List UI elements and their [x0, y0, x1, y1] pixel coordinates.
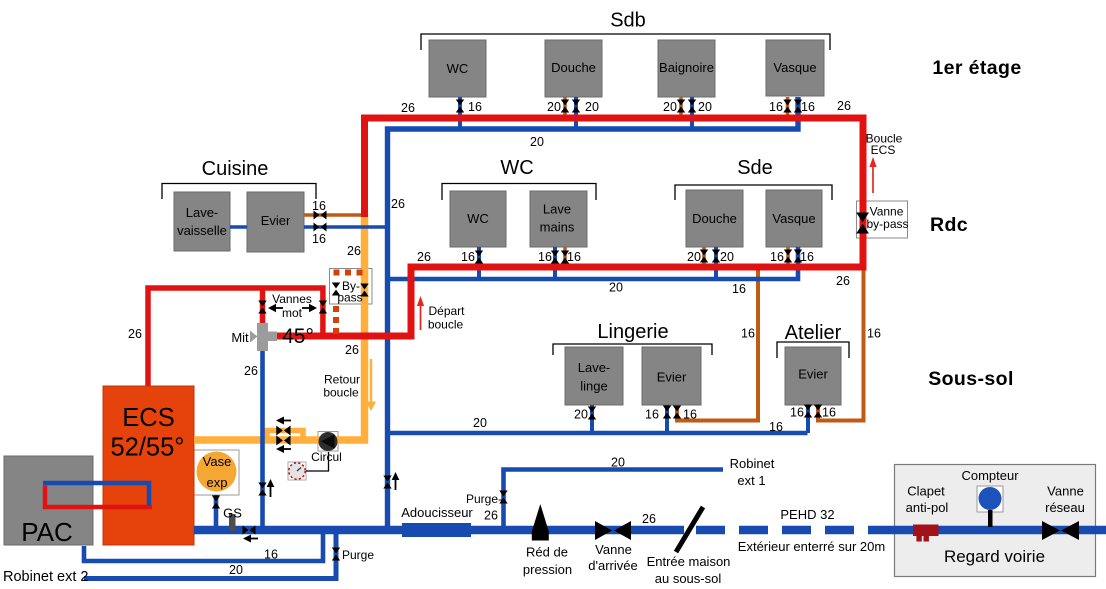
svg-text:20: 20	[609, 281, 623, 295]
svg-text:pression: pression	[523, 562, 572, 577]
svg-text:Lave-: Lave-	[578, 360, 611, 375]
svg-text:26: 26	[128, 327, 142, 341]
svg-text:Rdc: Rdc	[930, 214, 968, 236]
svg-text:Atelier: Atelier	[785, 322, 842, 344]
svg-text:16: 16	[800, 250, 814, 264]
svg-text:16: 16	[468, 100, 482, 114]
svg-text:26: 26	[836, 274, 850, 288]
svg-text:Lave: Lave	[543, 202, 571, 217]
svg-text:Regard voirie: Regard voirie	[944, 547, 1045, 566]
svg-text:16: 16	[822, 406, 836, 420]
svg-text:16: 16	[801, 100, 815, 114]
svg-text:WC: WC	[447, 61, 469, 76]
svg-text:26: 26	[417, 250, 431, 264]
svg-text:26: 26	[837, 99, 851, 113]
svg-text:boucle: boucle	[323, 386, 359, 400]
svg-text:Vanne: Vanne	[595, 542, 632, 557]
svg-text:Sde: Sde	[737, 157, 773, 179]
svg-text:26: 26	[244, 364, 258, 378]
svg-text:PAC: PAC	[21, 517, 73, 547]
svg-text:réseau: réseau	[1045, 500, 1085, 515]
svg-text:mot: mot	[282, 306, 303, 320]
svg-text:Vanne: Vanne	[1047, 484, 1084, 499]
svg-text:16: 16	[867, 327, 881, 341]
svg-text:16: 16	[538, 250, 552, 264]
svg-text:anti-pol: anti-pol	[906, 500, 949, 515]
svg-text:Circul: Circul	[311, 450, 342, 464]
svg-text:26: 26	[345, 343, 359, 357]
svg-text:Extérieur enterré sur 20m: Extérieur enterré sur 20m	[738, 539, 885, 554]
svg-text:Vasque: Vasque	[772, 211, 815, 226]
svg-text:20: 20	[585, 100, 599, 114]
svg-text:ECS: ECS	[122, 404, 174, 432]
svg-text:52/55°: 52/55°	[110, 434, 184, 462]
svg-text:WC: WC	[500, 157, 533, 179]
svg-text:16: 16	[683, 408, 697, 422]
svg-text:ext 1: ext 1	[737, 473, 765, 488]
svg-text:Baignoire: Baignoire	[659, 60, 714, 75]
svg-text:Départ: Départ	[428, 304, 465, 318]
svg-text:Douche: Douche	[692, 211, 737, 226]
svg-text:1er étage: 1er étage	[932, 57, 1021, 79]
svg-text:ECS: ECS	[871, 143, 896, 157]
svg-text:20: 20	[473, 416, 487, 430]
svg-text:Sdb: Sdb	[610, 10, 646, 32]
svg-text:Evier: Evier	[798, 367, 828, 382]
svg-text:16: 16	[769, 100, 783, 114]
svg-text:26: 26	[484, 509, 498, 523]
svg-text:16: 16	[645, 408, 659, 422]
svg-text:20: 20	[698, 100, 712, 114]
svg-text:26: 26	[391, 197, 405, 211]
svg-text:Sous-sol: Sous-sol	[928, 368, 1014, 390]
svg-text:Adoucisseur: Adoucisseur	[401, 505, 473, 520]
svg-text:Vasque: Vasque	[773, 60, 816, 75]
svg-text:au sous-sol: au sous-sol	[655, 571, 722, 586]
svg-text:20: 20	[687, 250, 701, 264]
svg-text:16: 16	[461, 250, 475, 264]
svg-text:Cuisine: Cuisine	[202, 158, 269, 180]
svg-text:20: 20	[663, 100, 677, 114]
svg-text:Vannes: Vannes	[272, 292, 312, 306]
svg-text:Evier: Evier	[261, 213, 291, 228]
svg-text:20: 20	[720, 250, 734, 264]
svg-text:20: 20	[229, 563, 243, 577]
svg-text:20: 20	[611, 456, 625, 470]
svg-text:Purge: Purge	[342, 548, 374, 562]
svg-text:GS: GS	[223, 506, 242, 521]
svg-text:Purge-: Purge-	[466, 492, 502, 506]
svg-text:Vase: Vase	[203, 454, 232, 469]
svg-text:16: 16	[312, 199, 326, 213]
svg-text:WC: WC	[467, 211, 489, 226]
svg-text:Lingerie: Lingerie	[597, 321, 668, 343]
svg-text:16: 16	[741, 327, 755, 341]
svg-text:Mit: Mit	[231, 330, 249, 345]
svg-text:26: 26	[401, 101, 415, 115]
svg-text:45°: 45°	[282, 325, 314, 348]
svg-text:20: 20	[547, 100, 561, 114]
svg-text:16: 16	[790, 406, 804, 420]
svg-text:exp: exp	[207, 475, 228, 490]
svg-text:Entrée maison: Entrée maison	[647, 554, 731, 569]
svg-text:PEHD 32: PEHD 32	[780, 507, 834, 522]
svg-text:16: 16	[264, 548, 278, 562]
svg-text:mains: mains	[540, 220, 575, 235]
svg-text:Douche: Douche	[551, 60, 596, 75]
svg-text:Réd de: Réd de	[526, 545, 568, 560]
svg-text:pass: pass	[337, 291, 362, 305]
svg-text:by-pass: by-pass	[866, 217, 908, 231]
svg-text:16: 16	[567, 250, 581, 264]
svg-text:Lave-: Lave-	[186, 205, 219, 220]
svg-text:vaisselle: vaisselle	[177, 223, 227, 238]
svg-text:16: 16	[312, 232, 326, 246]
svg-text:26: 26	[642, 512, 656, 526]
svg-text:Robinet: Robinet	[730, 456, 775, 471]
svg-text:Evier: Evier	[657, 370, 687, 385]
svg-text:boucle: boucle	[428, 318, 464, 332]
svg-text:Compteur: Compteur	[961, 468, 1019, 483]
svg-text:linge: linge	[580, 379, 607, 394]
svg-text:26: 26	[347, 244, 361, 258]
svg-text:Retour: Retour	[324, 373, 360, 387]
svg-text:20: 20	[530, 135, 544, 149]
svg-text:d'arrivée: d'arrivée	[588, 558, 637, 573]
svg-text:16: 16	[732, 282, 746, 296]
svg-text:Clapet: Clapet	[907, 484, 945, 499]
svg-text:16: 16	[769, 420, 783, 434]
svg-text:Robinet ext 2: Robinet ext 2	[3, 569, 88, 585]
svg-text:16: 16	[770, 250, 784, 264]
svg-text:20: 20	[574, 408, 588, 422]
